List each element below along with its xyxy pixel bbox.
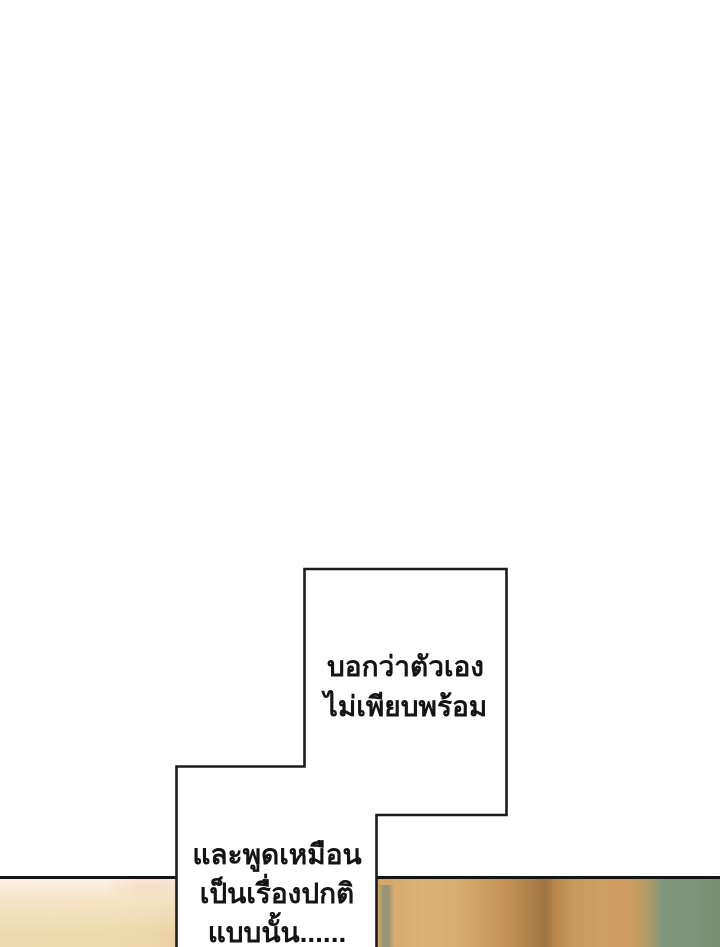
top-bubble-line-2: ไม่เพียบพร้อม	[324, 687, 488, 727]
bottom-bubble-line-2: เป็นเรื่องปกติ	[179, 874, 375, 913]
speech-bubble-shape	[0, 0, 720, 947]
comic-page: บอกว่าตัวเอง ไม่เพียบพร้อม และพูดเหมือน …	[0, 0, 720, 947]
bottom-bubble-line-3: แบบนั้น......	[179, 913, 375, 947]
top-bubble-line-1: บอกว่าตัวเอง	[327, 647, 484, 687]
top-bubble-text: บอกว่าตัวเอง ไม่เพียบพร้อม	[307, 569, 504, 804]
bottom-bubble-line-1: และพูดเหมือน	[179, 835, 375, 874]
bottom-bubble-text: และพูดเหมือน เป็นเรื่องปกติ แบบนั้น.....…	[179, 835, 375, 947]
